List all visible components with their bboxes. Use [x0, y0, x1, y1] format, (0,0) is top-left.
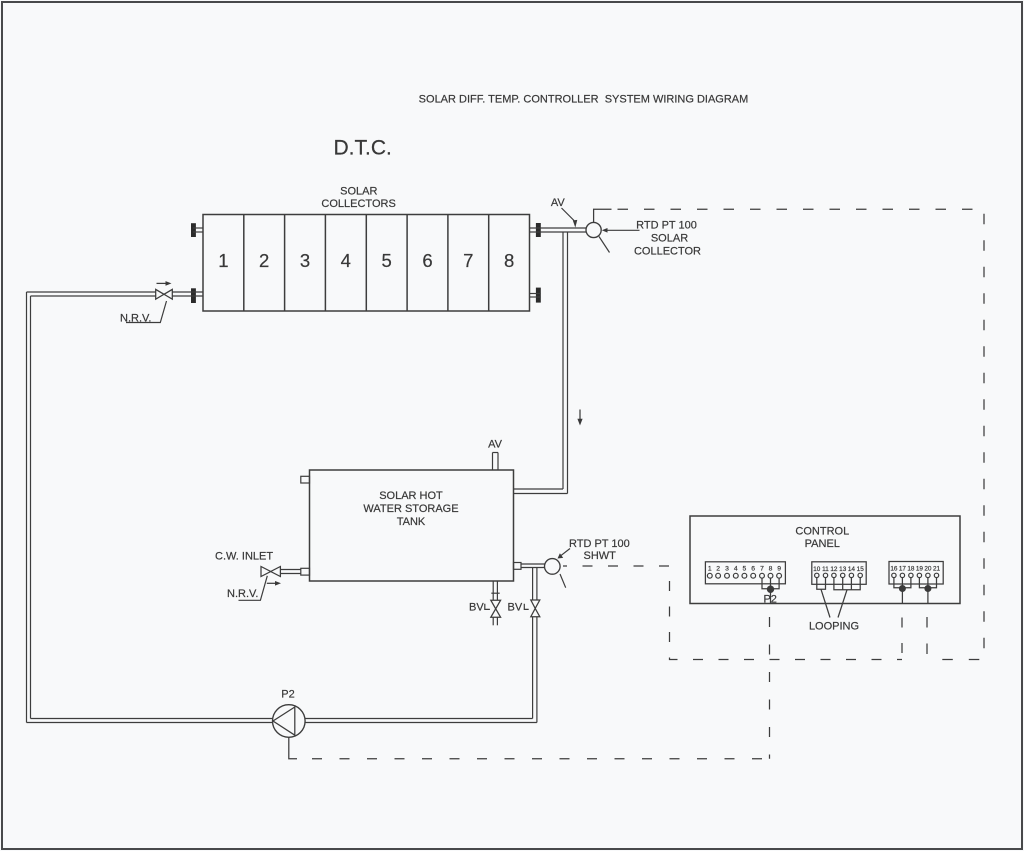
svg-text:12: 12 — [830, 566, 838, 573]
svg-text:3: 3 — [300, 250, 310, 271]
svg-text:P2: P2 — [281, 689, 294, 701]
svg-text:14: 14 — [848, 566, 856, 573]
svg-text:AV: AV — [551, 197, 566, 209]
svg-text:P2: P2 — [763, 594, 776, 606]
svg-text:8: 8 — [504, 250, 514, 271]
svg-text:6: 6 — [751, 566, 755, 573]
svg-text:9: 9 — [777, 566, 781, 573]
svg-text:20: 20 — [924, 566, 932, 573]
svg-text:16: 16 — [890, 566, 898, 573]
svg-text:13: 13 — [839, 566, 847, 573]
svg-text:RTD PT 100: RTD PT 100 — [636, 220, 697, 232]
svg-text:7: 7 — [463, 250, 473, 271]
svg-text:D.T.C.: D.T.C. — [334, 137, 392, 160]
svg-text:2: 2 — [716, 566, 720, 573]
svg-text:18: 18 — [907, 566, 915, 573]
svg-text:SOLAR HOT: SOLAR HOT — [379, 490, 443, 502]
svg-text:SOLAR: SOLAR — [340, 185, 377, 197]
svg-text:CONTROL: CONTROL — [795, 525, 849, 537]
svg-text:7: 7 — [760, 566, 764, 573]
svg-text:5: 5 — [381, 250, 391, 271]
svg-text:SOLAR DIFF. TEMP. CONTROLLER: SOLAR DIFF. TEMP. CONTROLLER SYSTEM WIRI… — [419, 94, 749, 106]
svg-text:WATER STORAGE: WATER STORAGE — [363, 503, 458, 515]
svg-text:3: 3 — [725, 566, 729, 573]
svg-text:5: 5 — [743, 566, 747, 573]
svg-text:AV: AV — [488, 439, 503, 451]
svg-text:19: 19 — [916, 566, 924, 573]
svg-text:11: 11 — [822, 566, 829, 573]
svg-text:BV: BV — [508, 602, 523, 614]
svg-text:2: 2 — [259, 250, 269, 271]
svg-text:21: 21 — [933, 566, 941, 573]
svg-text:6: 6 — [422, 250, 432, 271]
svg-text:COLLECTOR: COLLECTOR — [634, 246, 701, 258]
svg-text:N.R.V.: N.R.V. — [227, 588, 258, 600]
svg-text:10: 10 — [813, 566, 821, 573]
svg-text:COLLECTORS: COLLECTORS — [321, 198, 395, 210]
svg-text:4: 4 — [734, 566, 738, 573]
svg-text:BV: BV — [469, 602, 484, 614]
svg-text:1: 1 — [708, 566, 712, 573]
svg-text:LOOPING: LOOPING — [809, 621, 859, 633]
svg-text:SHWT: SHWT — [584, 550, 617, 562]
svg-text:17: 17 — [899, 566, 907, 573]
svg-text:1: 1 — [218, 250, 228, 271]
svg-text:C.W. INLET: C.W. INLET — [215, 551, 273, 563]
svg-text:TANK: TANK — [397, 516, 426, 528]
svg-text:PANEL: PANEL — [805, 538, 840, 550]
svg-text:15: 15 — [857, 566, 865, 573]
svg-text:RTD PT 100: RTD PT 100 — [569, 538, 630, 550]
svg-text:SOLAR: SOLAR — [651, 233, 688, 245]
svg-text:4: 4 — [341, 250, 351, 271]
svg-text:8: 8 — [769, 566, 773, 573]
